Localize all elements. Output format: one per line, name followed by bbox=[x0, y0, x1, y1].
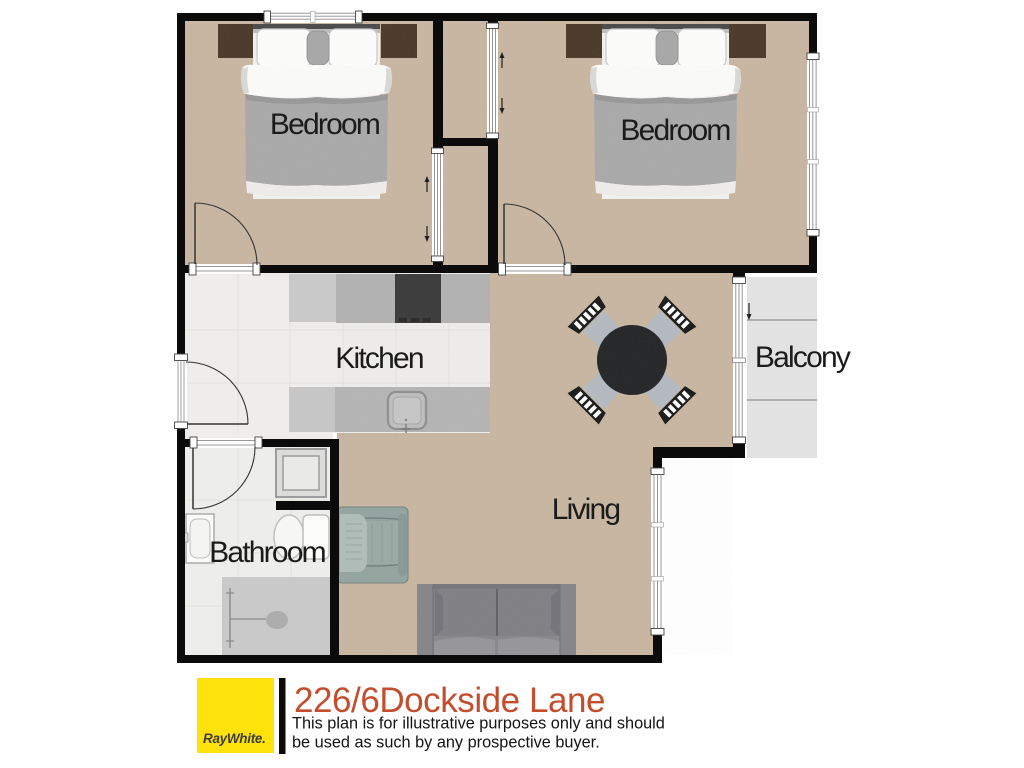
svg-text:This plan is for illustrative: This plan is for illustrative purposes o… bbox=[292, 715, 665, 733]
svg-text:Living: Living bbox=[552, 493, 620, 526]
svg-text:be used as such by any prospec: be used as such by any prospective buyer… bbox=[292, 734, 600, 752]
svg-text:Bedroom: Bedroom bbox=[270, 108, 380, 141]
svg-text:Kitchen: Kitchen bbox=[335, 342, 423, 375]
svg-text:Bathroom: Bathroom bbox=[209, 536, 325, 569]
svg-text:RayWhite.: RayWhite. bbox=[203, 731, 266, 746]
svg-text:Bedroom: Bedroom bbox=[620, 114, 730, 147]
svg-text:Balcony: Balcony bbox=[755, 341, 851, 374]
